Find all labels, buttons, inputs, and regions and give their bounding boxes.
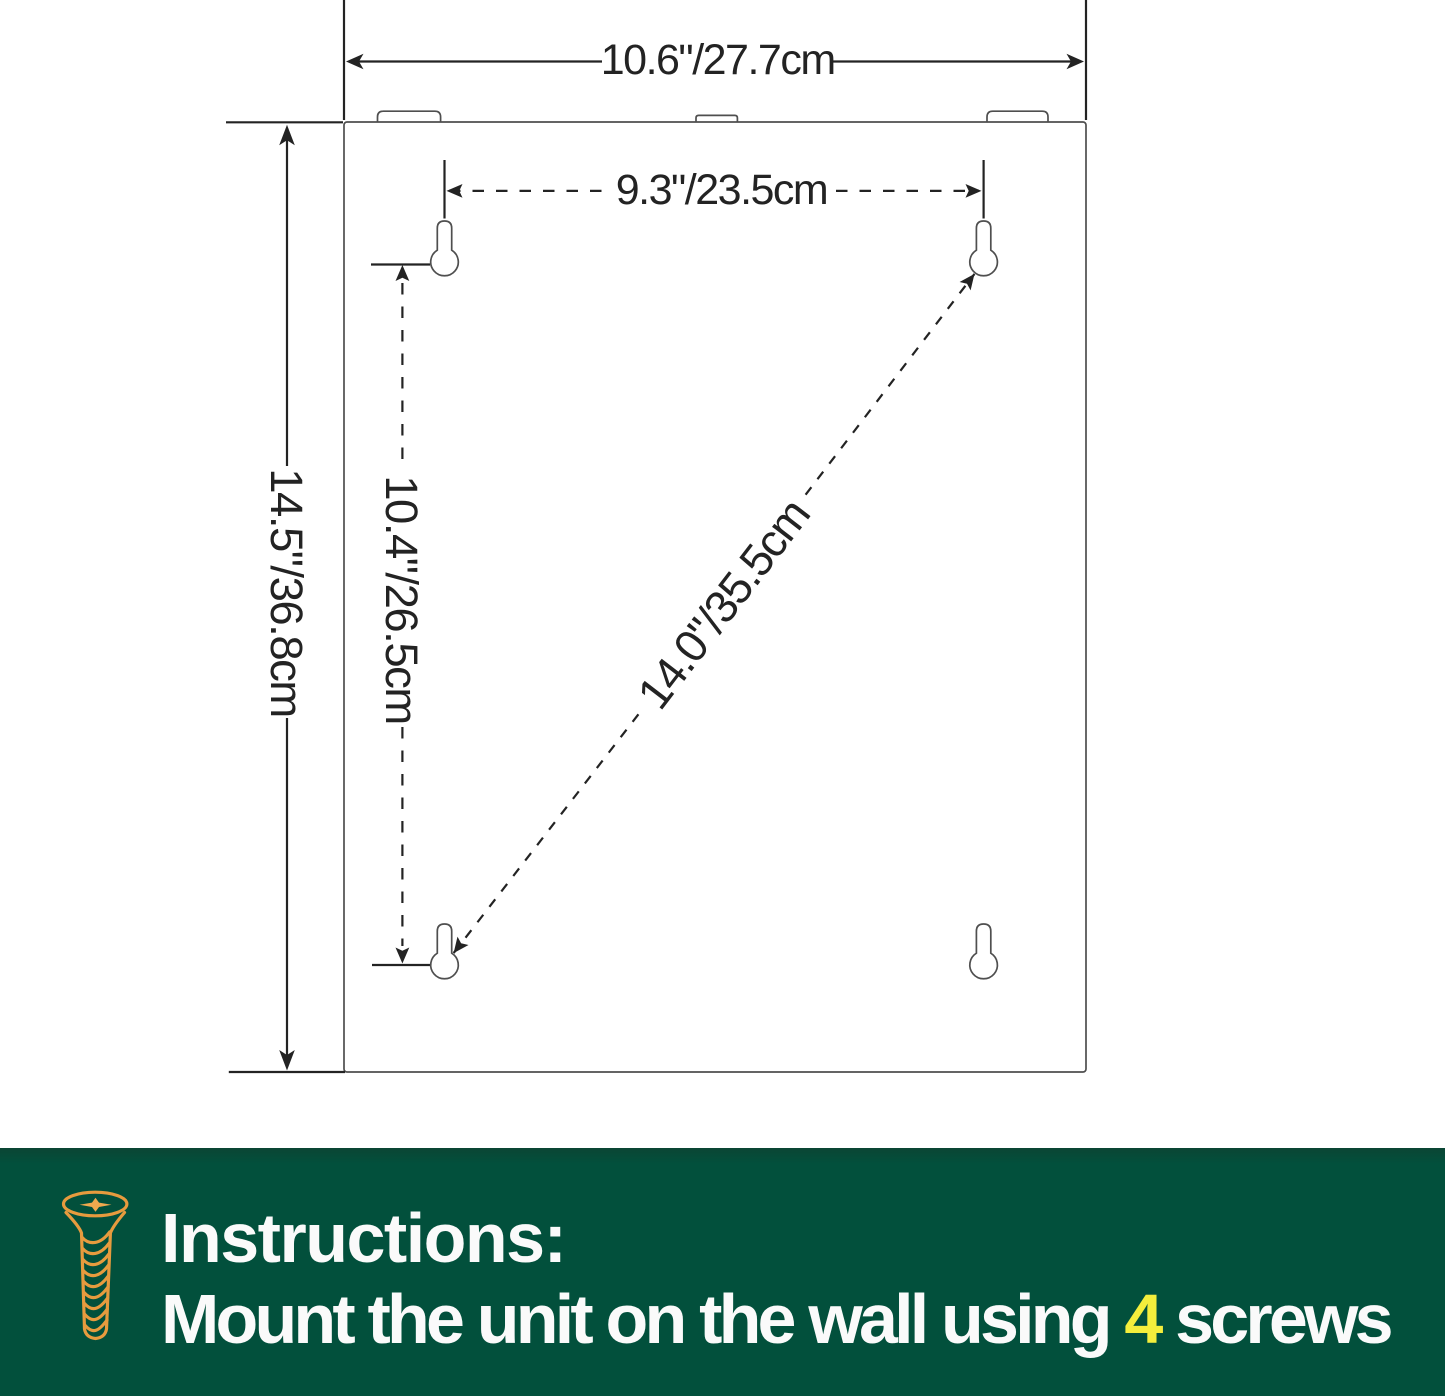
svg-text:14.5"/36.8cm: 14.5"/36.8cm: [261, 468, 312, 717]
svg-text:10.6"/27.7cm: 10.6"/27.7cm: [601, 36, 835, 84]
svg-text:9.3"/23.5cm: 9.3"/23.5cm: [616, 166, 828, 214]
svg-text:10.4"/26.5cm: 10.4"/26.5cm: [376, 475, 427, 724]
